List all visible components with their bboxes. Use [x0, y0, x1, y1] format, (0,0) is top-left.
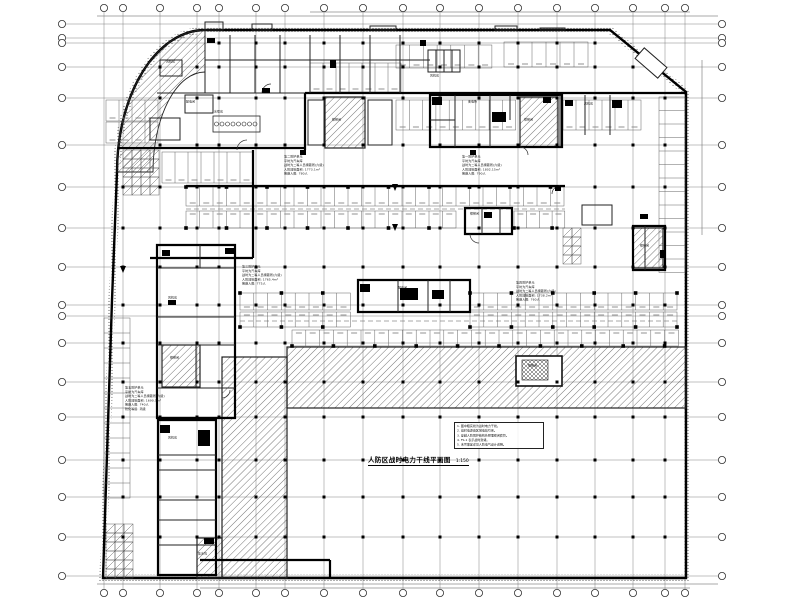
grid-bubble: [718, 572, 725, 579]
notes-legend-box: 1. 图中粗实线为战时电力干线。 2. 战时电源由区域电站引来。 3. 穿越人防…: [454, 422, 544, 449]
grid-bubble: [58, 572, 65, 579]
grid-bubble: [281, 4, 288, 11]
room-label-text: 风机房: [584, 102, 593, 106]
unit-line: 掩蔽人数: 760人: [516, 298, 556, 302]
room-label: 楼梯间: [470, 212, 488, 221]
grid-bubble: [681, 589, 688, 596]
grid-bubble: [718, 141, 725, 148]
grid-bubble: [252, 589, 259, 596]
grid-bubble: [320, 589, 327, 596]
room-label: 风机房: [430, 74, 448, 83]
grid-bubble: [119, 4, 126, 11]
grid-bubble: [100, 589, 107, 596]
grid-bubble: [718, 533, 725, 540]
room-label-text: 风机房: [168, 296, 177, 300]
grid-bubble: [718, 312, 725, 319]
grid-bubble: [215, 589, 222, 596]
grid-bubble: [58, 456, 65, 463]
room-label: 楼梯间: [528, 364, 546, 373]
floor-plan-canvas: [0, 0, 800, 600]
unit-annotation-3: 第三防护单元 平时为汽车库 战时为二等人员掩蔽所(六级) 人防建筑面积: 176…: [242, 265, 321, 308]
drawing-title: 人防区战时电力干线平面图: [368, 454, 451, 464]
grid-bubble: [252, 4, 259, 11]
grid-bubble: [718, 493, 725, 500]
grid-bubble: [193, 4, 200, 11]
grid-bubble: [718, 224, 725, 231]
room-label: 风机房: [168, 296, 186, 305]
grid-bubble: [436, 4, 443, 11]
grid-bubble: [718, 63, 725, 70]
grid-bubble: [119, 589, 126, 596]
room-label: 楼梯间: [170, 356, 188, 365]
room-label-text: 楼梯间: [170, 356, 179, 360]
room-label-text: 楼梯间: [640, 244, 649, 248]
room-label: 配电间: [186, 100, 204, 109]
grid-bubble: [58, 533, 65, 540]
grid-bubble: [681, 4, 688, 11]
room-label-text: 风机房: [166, 60, 175, 64]
unit-line: 防化等级: 丙级: [125, 407, 165, 411]
grid-bubble: [58, 141, 65, 148]
grid-bubble: [718, 378, 725, 385]
grid-bubble: [215, 4, 222, 11]
room-label-text: 变电所: [468, 100, 477, 104]
grid-bubble: [58, 94, 65, 101]
grid-bubble: [718, 263, 725, 270]
grid-bubble: [58, 493, 65, 500]
unit-annotation-5: 第五防护单元 平时为汽车库 战时为二等人员掩蔽所(六级) 人防建筑面积: 169…: [125, 386, 204, 437]
room-label: 水泵房: [214, 110, 232, 119]
floor-plan-page: 第二防护单元 平时为汽车库 战时为二等人员掩蔽所(六级) 人防建筑面积: 177…: [0, 0, 800, 600]
grid-bubble: [629, 4, 636, 11]
grid-bubble: [661, 4, 668, 11]
grid-bubble: [58, 339, 65, 346]
room-label-text: 风机房: [168, 436, 177, 440]
grid-bubble: [58, 39, 65, 46]
room-label-text: 楼梯间: [524, 118, 533, 122]
grid-bubble: [281, 589, 288, 596]
room-label: 配电间: [398, 286, 416, 295]
grid-bubble: [156, 4, 163, 11]
grid-bubble: [514, 4, 521, 11]
grid-bubble: [475, 4, 482, 11]
grid-bubble: [553, 589, 560, 596]
room-label-text: 配电间: [398, 286, 407, 290]
grid-bubble: [718, 20, 725, 27]
room-label: 风机房: [584, 102, 602, 111]
room-label: 风机房: [168, 436, 186, 445]
grid-bubble: [553, 4, 560, 11]
room-label: 风机房: [166, 60, 184, 69]
room-label: 楼梯间: [524, 118, 542, 127]
room-label-text: 水泵房: [214, 110, 223, 114]
grid-bubble: [58, 183, 65, 190]
grid-bubble: [100, 4, 107, 11]
room-label: 变电所: [468, 100, 486, 109]
room-label: 集水坑: [198, 552, 216, 561]
unit-line: 掩蔽人数: 780人: [284, 172, 324, 176]
grid-bubble: [58, 301, 65, 308]
room-label-text: 配电间: [186, 100, 195, 104]
grid-bubble: [718, 301, 725, 308]
grid-bubble: [514, 589, 521, 596]
grid-bubble: [718, 456, 725, 463]
grid-bubble: [591, 4, 598, 11]
grid-bubble: [320, 4, 327, 11]
room-label-text: 楼梯间: [528, 364, 537, 368]
unit-line: 掩蔽人数: 775人: [242, 282, 282, 286]
grid-bubble: [718, 183, 725, 190]
grid-bubble: [359, 4, 366, 11]
unit-annotation-4: 第四防护单元 平时为汽车库 战时为二等人员掩蔽所(六级) 人防建筑面积: 173…: [516, 281, 595, 324]
grid-bubble: [58, 378, 65, 385]
grid-bubble: [58, 20, 65, 27]
grid-bubble: [58, 263, 65, 270]
room-label-text: 楼梯间: [470, 212, 479, 216]
grid-bubble: [58, 224, 65, 231]
grid-bubble: [661, 589, 668, 596]
unit-annotation-1: 第一防护单元 平时为汽车库 战时为二等人员掩蔽所(六级) 人防建筑面积: 180…: [462, 155, 541, 198]
grid-bubble: [359, 589, 366, 596]
grid-bubble: [193, 589, 200, 596]
grid-bubble: [58, 63, 65, 70]
room-label-text: 楼梯间: [332, 118, 341, 122]
grid-bubble: [629, 589, 636, 596]
room-label-text: 风机房: [430, 74, 439, 78]
unit-line: 掩蔽人数: 790人: [462, 172, 502, 176]
grid-bubble: [399, 589, 406, 596]
unit-annotation-2: 第二防护单元 平时为汽车库 战时为二等人员掩蔽所(六级) 人防建筑面积: 177…: [284, 155, 363, 198]
grid-bubble: [591, 589, 598, 596]
grid-bubble: [475, 589, 482, 596]
note-line: 5. 未尽事宜详见人防电气设计说明。: [457, 443, 499, 448]
parking-stalls: [104, 42, 685, 578]
grid-bubble: [718, 413, 725, 420]
grid-bubble: [718, 94, 725, 101]
grid-bubble: [718, 339, 725, 346]
grid-bubble: [436, 589, 443, 596]
room-label-text: 集水坑: [198, 552, 207, 556]
room-label: 楼梯间: [640, 244, 658, 253]
room-label: 楼梯间: [332, 118, 350, 127]
drawing-title-block: 人防区战时电力干线平面图 1:150: [368, 454, 469, 466]
grid-bubble: [58, 413, 65, 420]
grid-bubble: [58, 312, 65, 319]
grid-bubble: [156, 589, 163, 596]
grid-bubble: [718, 39, 725, 46]
building-outline: [103, 30, 686, 578]
drawing-scale: 1:150: [456, 459, 469, 464]
grid-bubble: [399, 4, 406, 11]
